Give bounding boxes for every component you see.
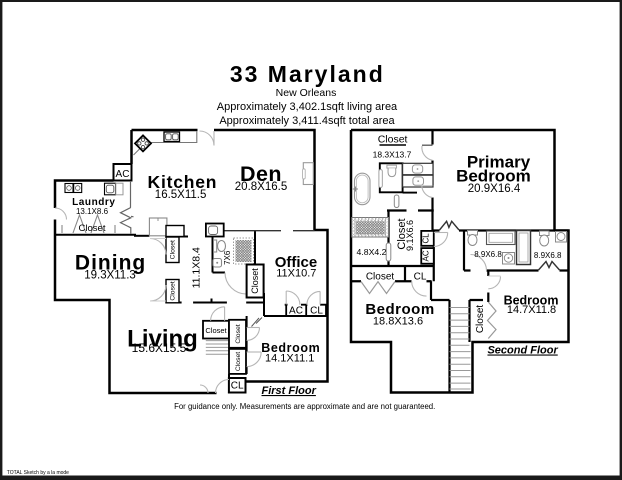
svg-text:Approximately 3,411.4sqft tota: Approximately 3,411.4sqft total area (219, 115, 395, 127)
svg-text:Closet: Closet (170, 281, 177, 300)
svg-text:11X10.7: 11X10.7 (276, 268, 316, 280)
svg-text:Closet: Closet (79, 223, 106, 234)
svg-text:14.1X11.1: 14.1X11.1 (265, 353, 314, 365)
svg-text:8.9X6.8: 8.9X6.8 (534, 251, 562, 260)
svg-text:9.1X6.6: 9.1X6.6 (405, 220, 415, 251)
svg-text:7X6: 7X6 (223, 250, 232, 265)
svg-text:20.9X16.4: 20.9X16.4 (468, 183, 521, 195)
svg-text:For guidance only. Measurement: For guidance only. Measurements are appr… (174, 402, 435, 411)
svg-text:Approximately 3,402.1sqft livi: Approximately 3,402.1sqft living area (217, 101, 398, 113)
svg-text:13.1X8.6: 13.1X8.6 (76, 207, 109, 216)
svg-text:CL: CL (231, 381, 244, 392)
svg-text:AC: AC (422, 250, 431, 261)
svg-text:Closet: Closet (378, 134, 408, 146)
svg-text:AC: AC (289, 306, 303, 317)
svg-text:18.3X13.7: 18.3X13.7 (373, 150, 412, 160)
svg-text:16.5X11.5: 16.5X11.5 (155, 189, 207, 201)
svg-text:Second Floor: Second Floor (487, 345, 558, 357)
svg-text:19.3X11.3: 19.3X11.3 (84, 270, 136, 282)
svg-text:CL: CL (422, 233, 431, 244)
svg-text:Closet: Closet (366, 272, 395, 283)
svg-text:33 Maryland: 33 Maryland (230, 61, 385, 87)
svg-text:11.1X8.4: 11.1X8.4 (191, 247, 203, 288)
svg-text:8.9X6.8: 8.9X6.8 (474, 250, 502, 259)
svg-text:20.8X16.5: 20.8X16.5 (235, 181, 287, 193)
svg-text:AC: AC (116, 169, 130, 180)
svg-text:Closet: Closet (235, 352, 242, 371)
svg-text:First Floor: First Floor (262, 385, 317, 397)
svg-text:CL: CL (414, 272, 427, 283)
svg-text:Closet: Closet (170, 240, 177, 259)
svg-text:Closet: Closet (250, 268, 260, 294)
svg-text:CL: CL (310, 306, 323, 317)
svg-text:4.8X4.2: 4.8X4.2 (357, 247, 387, 257)
svg-text:Closet: Closet (205, 326, 227, 335)
svg-text:Closet: Closet (235, 324, 242, 343)
svg-text:New Orleans: New Orleans (276, 87, 337, 99)
svg-text:18.8X13.6: 18.8X13.6 (373, 316, 423, 328)
svg-text:14.7X11.8: 14.7X11.8 (507, 304, 556, 316)
svg-text:TOTAL Sketch by a la mode: TOTAL Sketch by a la mode (7, 470, 69, 476)
svg-text:15.6X15.5: 15.6X15.5 (132, 341, 187, 355)
svg-text:Closet: Closet (475, 305, 486, 334)
